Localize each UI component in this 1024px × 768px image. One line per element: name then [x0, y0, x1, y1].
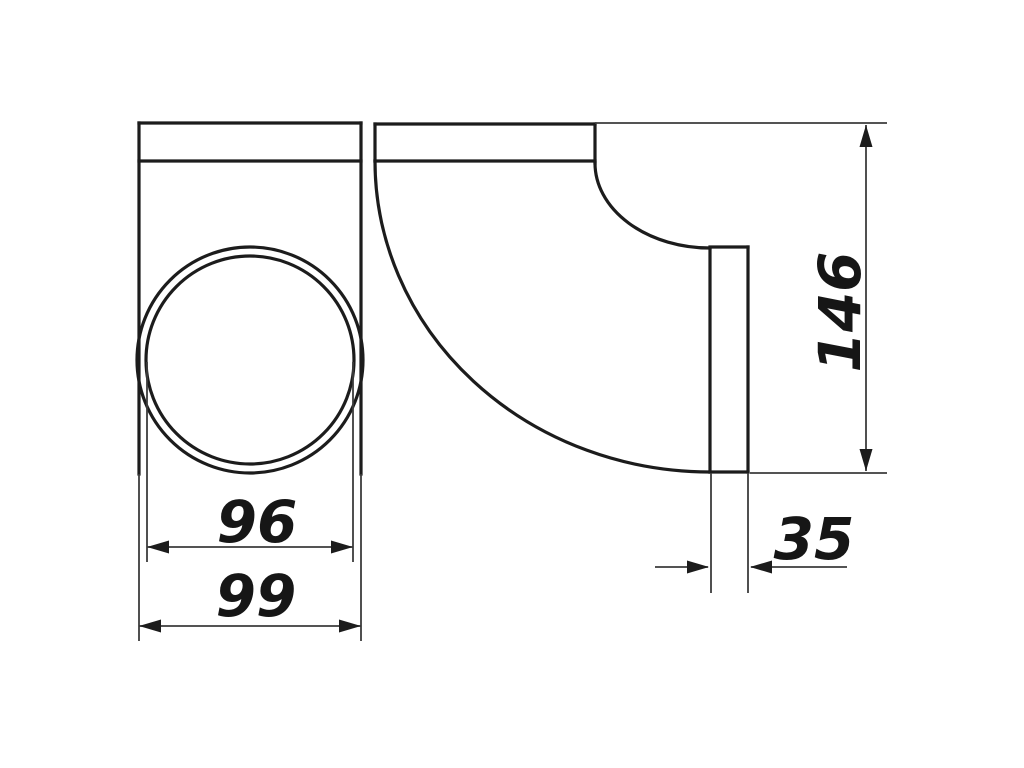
dim-35-arrow-right-icon	[687, 561, 709, 574]
dim-96-arrow-left-icon	[147, 541, 169, 554]
dim-35-arrow-left-icon	[750, 561, 772, 574]
duct-elbow-drawing: 96 99 146	[0, 0, 1024, 768]
dim-99-label: 99	[216, 562, 297, 630]
front-spigot-outer-circle	[137, 247, 363, 473]
front-spigot-inner-circle	[146, 256, 354, 464]
technical-drawing-canvas: 96 99 146	[0, 0, 1024, 768]
elbow-inner-curve	[595, 163, 710, 248]
elbow-outer-curve	[375, 161, 710, 472]
dim-146-arrow-up-icon	[860, 125, 873, 147]
dim-96-label: 96	[217, 488, 298, 556]
front-view	[137, 123, 363, 474]
dimension-35: 35	[655, 473, 854, 593]
dim-96-arrow-right-icon	[331, 541, 353, 554]
dim-146-arrow-down-icon	[860, 449, 873, 471]
side-view	[375, 124, 748, 472]
dim-146-label: 146	[806, 251, 874, 372]
dim-35-label: 35	[774, 505, 855, 573]
dim-99-arrow-right-icon	[339, 620, 361, 633]
dim-99-arrow-left-icon	[139, 620, 161, 633]
dimension-96: 96	[147, 362, 353, 562]
dimension-146: 146	[595, 123, 887, 473]
